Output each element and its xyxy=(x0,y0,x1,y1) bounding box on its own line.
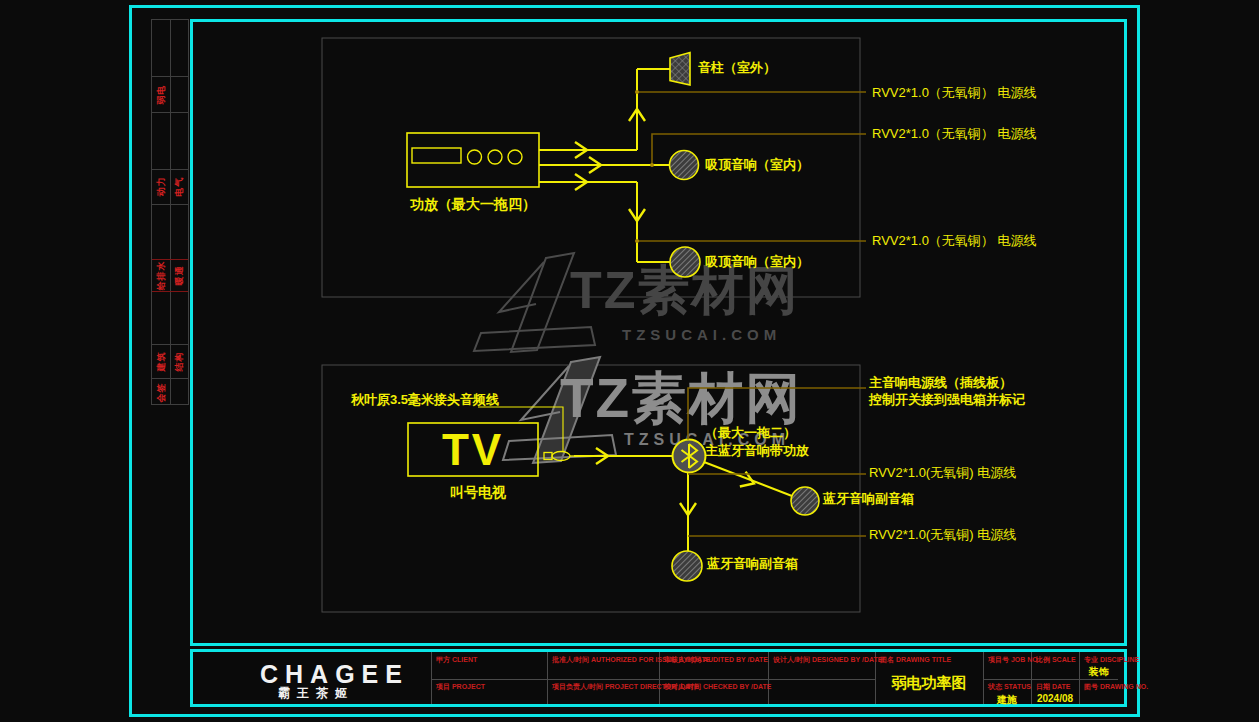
audited-field-label: 审核人/时间 AUDITED BY /DATE xyxy=(664,656,768,663)
ceiling-speaker-label: 吸顶音响（室内） xyxy=(705,158,809,173)
drawing-title-value: 弱电功率图 xyxy=(875,674,983,693)
drawing-title-field-label: 图名 DRAWING TITLE xyxy=(880,656,951,663)
sub-speaker-label: 蓝牙音响副音箱 xyxy=(707,557,798,572)
bluetooth-speaker-icon xyxy=(673,440,706,473)
audio-plug-icon xyxy=(544,452,574,461)
power-cable-label: RVV2*1.0（无氧铜） 电源线 xyxy=(872,234,1036,249)
tv-text: TV xyxy=(408,428,538,472)
discipline-field-label: 专业 DISCIPLINE xyxy=(1084,656,1139,663)
main-power-note-label: 控制开关接到强电箱并标记 xyxy=(869,393,1025,408)
drawing-no-field-label: 图号 DRAWING NO. xyxy=(1084,683,1148,690)
power-cable-label: RVV2*1.0(无氧铜) 电源线 xyxy=(869,466,1016,481)
schematic-layer xyxy=(0,0,1259,722)
amplifier-symbol xyxy=(407,133,539,187)
client-field-label: 甲方 CLIENT xyxy=(436,656,477,663)
job-no-field-label: 项目号 JOB NO. xyxy=(988,656,1040,663)
bt-branch-line xyxy=(704,462,792,496)
power-cable-label: RVV2*1.0(无氧铜) 电源线 xyxy=(869,528,1016,543)
sub-speaker-icon xyxy=(791,487,819,515)
project-field-label: 项目 PROJECT xyxy=(436,683,485,690)
date-field-label: 日期 DATE xyxy=(1036,683,1070,690)
sub-speaker-label: 蓝牙音响副音箱 xyxy=(823,492,914,507)
ceiling-speaker-icon xyxy=(670,151,699,180)
column-speaker-label: 音柱（室外） xyxy=(698,61,776,76)
ceiling-speaker-icon xyxy=(670,247,700,277)
checked-field-label: 校对人/时间 CHECKED BY /DATE xyxy=(664,683,771,690)
power-cable-label: RVV2*1.0（无氧铜） 电源线 xyxy=(872,127,1036,142)
title-block: CHAGEE 霸王茶姬 甲方 CLIENT 项目 PROJECT 批准人/时间 … xyxy=(190,649,1127,707)
status-value: 建施 xyxy=(983,693,1031,707)
audio-cable-label: 秋叶原3.5毫米接头音频线 xyxy=(351,393,499,408)
amplifier-label: 功放（最大一拖四） xyxy=(407,196,539,212)
discipline-value: 装饰 xyxy=(1079,665,1118,679)
status-field-label: 状态 STATUS xyxy=(988,683,1031,690)
bt-capacity-label: （最大一拖二） xyxy=(705,426,796,441)
date-value: 2024/08 xyxy=(1031,693,1079,704)
scale-field-label: 比例 SCALE xyxy=(1036,656,1076,663)
column-speaker-icon xyxy=(670,53,690,86)
designed-field-label: 设计人/时间 DESIGNED BY /DATE xyxy=(773,656,882,663)
tv-label: 叫号电视 xyxy=(450,484,506,500)
cad-sheet: 弱电 动力 电气 给排水 暖通 建筑 结构 会签 TZ素材网 TZSUCAI.C… xyxy=(0,0,1259,722)
power-supply-lines xyxy=(688,388,866,536)
ceiling-speaker-label: 吸顶音响（室内） xyxy=(705,255,809,270)
sub-speaker-icon xyxy=(672,551,702,581)
chagee-logo-cn: 霸王茶姬 xyxy=(278,685,354,702)
power-cable-label: RVV2*1.0（无氧铜） 电源线 xyxy=(872,86,1036,101)
main-power-label: 主音响电源线（插线板） xyxy=(869,376,1012,391)
bt-main-speaker-label: 主蓝牙音响带功放 xyxy=(705,444,809,459)
